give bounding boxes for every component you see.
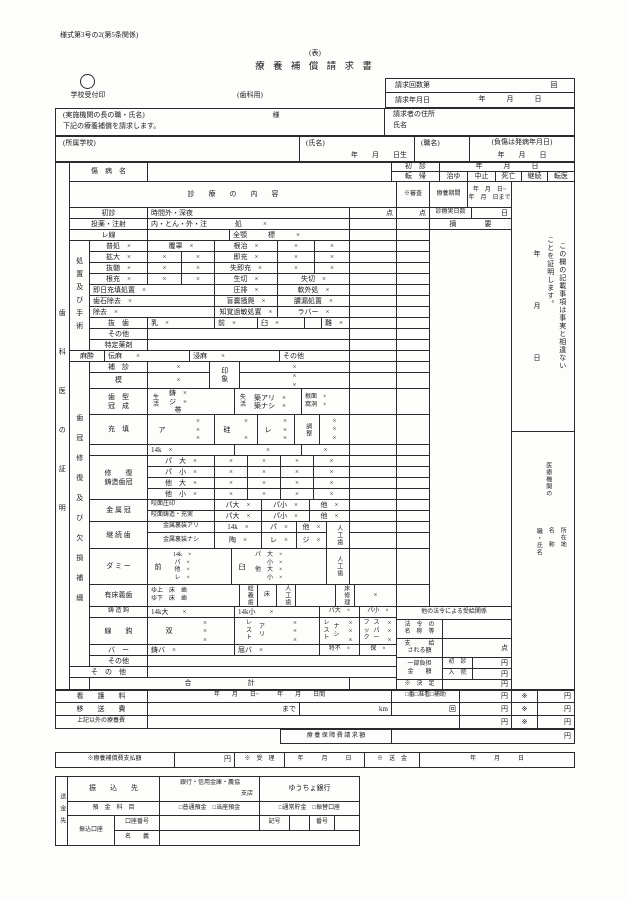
cell-rows-yuka_shuri: 床修理: [336, 585, 355, 607]
cell-rows-dmy_label: ダ ミ ー: [90, 549, 148, 585]
school-stamp-circle-icon: [80, 74, 95, 89]
cell-who-born: 年 月 日生: [322, 150, 410, 160]
cell-head-day: 日: [472, 208, 512, 219]
cell-rows-dmy1: 前: [152, 549, 164, 585]
cell-jokigai-yen: 円: [460, 716, 512, 729]
cell-rows-f3-0: 他 大 ×: [148, 478, 215, 489]
cell-rows-s2-1: ×: [148, 252, 182, 263]
cell-rows-kin1-1: パ大 ×: [215, 500, 262, 511]
cell-rows-sen2: レ ス ト: [322, 618, 331, 645]
cell-rows-mo-0: 模: [90, 373, 148, 389]
cell-rows-juten_label: 充 填: [90, 415, 148, 445]
cell-kango-label: 看 護 料: [55, 690, 148, 703]
blank-cell: [148, 329, 350, 340]
blank-cell: [148, 618, 235, 645]
cell-pay-juri: ※ 受 理: [235, 752, 285, 768]
cell-header-style_no: 様式第3号の2(第5条関係): [57, 30, 237, 41]
cell-kango-yen: 円: [538, 690, 575, 703]
cell-hoka-nyuin: 入 院: [443, 669, 473, 680]
cell-rows-kin2-0: 咬面鋳造・充実: [148, 511, 215, 522]
cell-rows-sen1: 双: [163, 618, 175, 645]
cell-rows-juten-1: × × ×: [188, 415, 208, 445]
blank-cell: [160, 831, 360, 846]
blank-cell: [350, 500, 397, 511]
cell-rows-dmy2_items: パ 大 × 小 × 他 大 × 小 ×: [252, 549, 324, 585]
blank-cell: [350, 307, 397, 318]
cell-rows-shufuku_label: 修 復 鋳造歯冠: [90, 456, 148, 500]
cell-grp-shochi: 処置及び手術: [70, 241, 90, 351]
cell-rows-insho: 印象: [210, 362, 240, 389]
cell-rows-f2-2: ×: [248, 467, 281, 478]
cell-rows-sonota_in: その他: [90, 656, 148, 667]
cell-certify-y: 年: [531, 248, 543, 260]
cell-rows-juten-2: 硅: [221, 415, 233, 445]
cell-rows-sen3b: ナ シ: [332, 618, 341, 645]
cell-rows-sen4x: × × ×: [383, 618, 396, 645]
blank-cell: [70, 678, 90, 690]
cell-certify-line2: ことを証明します。: [544, 192, 557, 352]
cell-seikyu-yen: 円: [392, 729, 575, 744]
cell-rows-juten-5: × × ×: [279, 415, 291, 445]
cell-rows-sogigishi: 総義歯: [240, 585, 258, 607]
cell-rows-f1-0: パ 大 ×: [148, 456, 215, 467]
cell-rows-bar-2: 屈バ ×: [235, 645, 320, 656]
blank-cell: [350, 389, 397, 415]
cell-rows-kin2-1: パ大 ×: [215, 511, 262, 522]
cell-header-title: 療 養 補 償 請 求 書: [218, 61, 412, 75]
blank-cell: [350, 415, 397, 445]
blank-cell: [350, 285, 397, 296]
blank-cell: [397, 373, 430, 389]
cell-who-job: (職名): [418, 138, 463, 148]
cell-rows-sen2: レ ス ト: [244, 618, 254, 645]
cell-rows-s6-1: 盲嚢掻爬 ×: [215, 296, 278, 307]
blank-cell: [397, 522, 430, 533]
cell-rows-s3-2: ×: [182, 263, 215, 274]
cell-claim-date_label: 請求年月日: [392, 95, 450, 106]
cell-rows-s8-2: 前 ×: [215, 318, 258, 329]
cell-rows-sen1x: × × ×: [198, 618, 212, 645]
blank-cell: [350, 456, 397, 467]
cell-grp-shikan: 歯冠修復及び欠損補綴: [70, 362, 90, 667]
blank-cell: [350, 241, 397, 252]
cell-iso-kai: 回: [392, 703, 460, 716]
cell-certify-name: 名 称: [544, 516, 555, 558]
cell-kango-dates: 年 月 日~ 年 月 日間: [148, 690, 392, 703]
cell-rows-kin_label: 金 属 冠: [90, 500, 148, 522]
blank-cell: [350, 373, 397, 389]
cell-request-name: 氏名: [390, 120, 450, 130]
cell-byomei-o3: 死亡: [496, 172, 522, 182]
cell-claim-times_unit: 回: [542, 80, 566, 91]
cell-request-to: (実施機関の長の職・氏名): [60, 110, 230, 120]
cell-byomei-label: 傷 病 名: [70, 162, 148, 182]
cell-rows-s2-5: ×: [315, 252, 350, 263]
cell-rows-f3-4: ×: [314, 478, 350, 489]
cell-rows-dmy1_items: 14k × パ × 他 × レ ×: [170, 549, 228, 585]
blank-cell: [397, 329, 430, 340]
cell-rows-f4-3: ×: [281, 489, 314, 500]
blank-cell: [90, 445, 148, 456]
blank-cell: [350, 329, 397, 340]
blank-cell: [397, 241, 430, 252]
cell-rows-f2-4: ×: [314, 467, 350, 478]
cell-head-tekiyo: 摘 要: [430, 219, 512, 230]
cell-bank-yucho: ゆうちょ銀行: [260, 776, 360, 802]
cell-rows-kei2-2: レ ×: [262, 533, 297, 549]
cell-rows-k14-1: ×: [235, 445, 302, 456]
cell-rows-insho_x-0: ×: [240, 362, 350, 373]
cell-rows-kin1-0: 咬面圧印: [148, 500, 215, 511]
cell-jokigai-star: ※: [512, 716, 538, 729]
blank-cell: [350, 362, 397, 373]
cell-request-body: 下記の療養補償を請求します。: [60, 121, 220, 131]
cell-rows-bar-4: 保 ×: [360, 645, 397, 656]
cell-rows-masui-2: その他: [280, 351, 350, 362]
cell-rows-f1-2: ×: [248, 456, 281, 467]
blank-cell: [290, 816, 310, 831]
cell-rows-kei1-1: 14k ×: [215, 522, 262, 533]
cell-rows-s8-4: 難 ×: [322, 318, 350, 329]
cell-head-ten: 点: [397, 208, 430, 219]
blank-cell: [148, 162, 392, 182]
cell-rows-xray-0: レ線: [70, 230, 148, 241]
cell-rows-s1-3: ×: [278, 241, 315, 252]
cell-iso-made: まで: [148, 703, 300, 716]
cell-rows-kei1-3: 他 ×: [297, 522, 327, 533]
cell-rows-sen2x: × × ×: [344, 618, 357, 645]
blank-cell: [350, 489, 397, 500]
cell-rows-yusho_x: ×: [355, 585, 397, 607]
cell-rows-sonota_out: そ の 他: [70, 667, 148, 678]
cell-rows-f2-0: パ 小 ×: [148, 467, 215, 478]
cell-byomei-o4: 継続: [522, 172, 548, 182]
cell-rows-s8-1: 乳 ×: [148, 318, 215, 329]
blank-cell: [148, 667, 397, 678]
cell-rows-masui-0: 伝麻 ×: [105, 351, 190, 362]
cell-rows-insho_x-1: × ×: [240, 373, 350, 389]
blank-cell: [148, 656, 397, 667]
cell-rows-bar-1: 鋳バ ×: [148, 645, 235, 656]
cell-rows-bar-3: 特不 ×: [320, 645, 360, 656]
blank-cell: [397, 219, 430, 230]
blank-cell: [148, 230, 230, 241]
cell-seikyu-label: 療 養 保 障 費 請 求 額: [280, 729, 392, 744]
cell-rows-shikei-0: 生 活: [150, 389, 162, 415]
cell-rows-chuzo-1: 14k大 ×: [148, 607, 235, 618]
cell-byomei-o5: 転医: [548, 172, 575, 182]
blank-cell: [397, 263, 430, 274]
blank-cell: [305, 318, 322, 329]
blank-cell: [350, 478, 397, 489]
cell-iso-yen: 円: [460, 703, 512, 716]
cell-iso-star: ※: [512, 703, 538, 716]
cell-rows-s4-1: ×: [148, 274, 182, 285]
cell-jokigai-label: 上記以外の療養費: [55, 716, 148, 729]
cell-rows-f4-4: ×: [314, 489, 350, 500]
blank-cell: [397, 285, 430, 296]
cell-rows-f1-1: ×: [215, 456, 248, 467]
blank-cell: [397, 415, 430, 445]
cell-head-kikan: 療養期間: [430, 182, 468, 208]
cell-claim-ymd: 年 月 日: [450, 94, 570, 105]
cell-header-dental: (歯科用): [222, 90, 278, 100]
cell-hoka-kettei: ※ 決 定: [397, 680, 443, 690]
cell-rows-s6-0: 歯石除去 ×: [90, 296, 215, 307]
cell-rows-chuzo-0: 鋳 造 鈎: [90, 607, 148, 618]
blank-cell: [350, 252, 397, 263]
blank-cell: [397, 389, 430, 415]
cell-rows-f3-3: ×: [281, 478, 314, 489]
cell-rows-f4-2: ×: [248, 489, 281, 500]
cell-rows-sen_label: 線 鈎: [90, 618, 148, 645]
cell-rows-shoshin-1: 時間外・深夜: [148, 208, 350, 219]
cell-rows-s3-3: 失即充 ×: [215, 263, 278, 274]
cell-rows-s4-2: ×: [182, 274, 215, 285]
cell-rows-toyaku-0: 投薬・注射: [70, 219, 148, 230]
cell-certify-line1: この欄の記載事項は事実と相違ない: [556, 192, 569, 420]
cell-rows-f4-0: 他 小 ×: [148, 489, 215, 500]
cell-certify-left: 歯科医の証明: [55, 162, 70, 690]
cell-hoka-horei: 法 令 の 名 称 等: [397, 620, 443, 639]
cell-rows-f2-1: ×: [215, 467, 248, 478]
blank-cell: [350, 274, 397, 285]
blank-cell: [397, 549, 430, 585]
cell-byomei-first: 初 診: [392, 162, 440, 172]
blank-cell: [148, 340, 350, 351]
cell-rows-s7-1: 知覚過敏処置 ×: [215, 307, 278, 318]
blank-cell: [350, 549, 397, 585]
cell-pay-yen: 円: [175, 752, 235, 768]
cell-pay-label: ※療養補償費支払額: [55, 752, 175, 768]
cell-claim-times: 請求回数第: [392, 80, 472, 91]
cell-byomei-first_ymd: 年 月 日: [440, 162, 575, 172]
cell-rows-shoshin-0: 初診: [70, 208, 148, 219]
cell-rows-s3-5: ×: [315, 263, 350, 274]
cell-certify-job: 職・氏名: [532, 516, 543, 568]
cell-rows-masui-1: 浸麻 ×: [190, 351, 280, 362]
cell-who-injury: (負傷は発病年月日): [472, 137, 572, 147]
cell-bank-futsu: □普通預金 □当座預金: [160, 802, 260, 816]
cell-kango-yen: 円: [460, 690, 512, 703]
cell-pay-ymd: 年 月 日: [420, 752, 575, 768]
cell-head-ten: 点: [350, 208, 397, 219]
blank-cell: [397, 307, 430, 318]
blank-cell: [397, 500, 430, 511]
blank-cell: [397, 445, 430, 456]
cell-rows-yusho_label: 有床義歯: [90, 585, 148, 607]
cell-rows-s5-2: 軟外処 ×: [278, 285, 350, 296]
blank-cell: [350, 467, 397, 478]
blank-cell: [397, 456, 430, 467]
cell-iso-label: 移 送 費: [55, 703, 148, 716]
cell-rows-s1-0: 普処 ×: [90, 241, 148, 252]
cell-rows-kei_label: 継 続 歯: [90, 522, 148, 549]
cell-hoka-ten: 点: [443, 639, 512, 658]
cell-bank-bango: 番号: [310, 816, 335, 831]
cell-rows-s2-4: ×: [278, 252, 315, 263]
cell-rows-f3-1: ×: [215, 478, 248, 489]
cell-certify-d: 日: [531, 352, 543, 364]
cell-rows-hoshin-1: ×: [148, 362, 210, 373]
cell-rows-hoshin-0: 補 診: [90, 362, 148, 373]
blank-cell: [350, 296, 397, 307]
cell-header-stamp_label: 学校受付印: [58, 90, 118, 100]
cell-rows-kei2-3: ジ ×: [297, 533, 327, 549]
blank-cell: [397, 362, 430, 373]
cell-bank-branch: 支店: [228, 790, 256, 800]
cell-rows-jinko: 人工歯: [327, 549, 350, 585]
blank-cell: [397, 585, 430, 607]
cell-rows-k14-2: ×: [302, 445, 350, 456]
blank-cell: [350, 219, 397, 230]
cell-rows-kei1-0: 金属裏装アリ: [148, 522, 215, 533]
blank-cell: [397, 296, 430, 307]
cell-rows-toyaku-1: 内・とん・外・注 処 ×: [148, 219, 350, 230]
blank-cell: [160, 816, 260, 831]
cell-rows-shikei-1: 鋳 × ジ × 帯: [166, 389, 232, 415]
cell-head-shinsa: ※審査: [397, 182, 430, 208]
cell-rows-juten-7: × × ×: [320, 415, 350, 445]
cell-head-naiyo: 診 療 の 内 容: [70, 182, 397, 208]
blank-cell: [397, 252, 430, 263]
cell-rows-s4-4: 失切 ×: [278, 274, 350, 285]
blank-cell: [443, 620, 512, 639]
cell-rows-s8-0: 抜 歯: [90, 318, 148, 329]
blank-cell: [397, 467, 430, 478]
cell-rows-kin2-3: 他 ×: [310, 511, 350, 522]
cell-head-k12: 年 月 日~ 年 月 日まで: [468, 182, 512, 208]
cell-rows-toko: 床: [258, 585, 277, 607]
cell-rows-gokei: 合 計: [90, 678, 350, 690]
cell-who-ymd: 年 月 日: [472, 150, 572, 160]
cell-rows-sen2b: ア リ: [257, 618, 267, 645]
cell-certify-addr: 所在地: [556, 516, 567, 558]
cell-rows-xray-1: 全顎 標 ×: [230, 230, 350, 241]
cell-rows-dmy2: 臼: [236, 549, 248, 585]
cell-rows-s10: 特定薬剤: [90, 340, 148, 351]
cell-rows-s6-2: 膿漏処置 ×: [278, 296, 350, 307]
cell-bank-koza_no: 口座番号: [115, 816, 160, 831]
blank-cell: [397, 340, 430, 351]
blank-cell: [350, 522, 397, 533]
cell-rows-shikei-4: 根面 × 窩洞 ×: [302, 389, 350, 415]
cell-rows-s5-1: 圧排 ×: [215, 285, 278, 296]
cell-grp-masui: 麻酔: [70, 351, 105, 362]
blank-cell: [350, 533, 397, 549]
cell-hoka-shikyu: 支 給 される額: [397, 639, 443, 658]
blank-cell: [335, 816, 360, 831]
cell-rows-chuzo-3: パ大 ×: [320, 607, 360, 618]
cell-rows-s3-0: 抜髄 ×: [90, 263, 148, 274]
cell-rows-kin1-3: 他 ×: [310, 500, 350, 511]
cell-rows-s1-4: ×: [315, 241, 350, 252]
blank-cell: [350, 340, 397, 351]
cell-rows-s2-0: 拡大 ×: [90, 252, 148, 263]
cell-bank-furikomi: 振 込 先: [68, 776, 160, 802]
cell-certify-m: 月: [531, 300, 543, 312]
blank-cell: [397, 230, 430, 241]
cell-kango-star: ※: [512, 690, 538, 703]
cell-rows-s5-0: 即日充填処置 ×: [90, 285, 215, 296]
cell-rows-kei1-2: パ ×: [262, 522, 297, 533]
blank-cell: [397, 533, 430, 549]
medical-claim-form-dental: 様式第3号の2(第5条関係)(表)療 養 補 償 請 求 書学校受付印(歯科用)…: [0, 0, 630, 902]
cell-rows-s7-0: 除去 ×: [90, 307, 215, 318]
cell-rows-yusho1: ゆ上 床 歯 ゆ下 床 歯: [148, 585, 240, 607]
cell-byomei-o1: 治ゆ: [440, 172, 468, 182]
blank-cell: [350, 351, 397, 362]
cell-rows-f2-3: ×: [281, 467, 314, 478]
cell-bank-tsujo: □通常貯金 □振替口座: [260, 802, 360, 816]
cell-rows-sen2x: × × ×: [288, 618, 302, 645]
cell-certify-org: 医療機関の: [541, 448, 553, 510]
cell-rows-f3-2: ×: [248, 478, 281, 489]
cell-rows-sen4b: ス パ ー: [372, 618, 381, 645]
blank-cell: [397, 511, 430, 522]
cell-rows-chuzo-2: 14k小 ×: [235, 607, 320, 618]
blank-cell: [397, 351, 430, 362]
cell-hoka-yen: 円: [473, 669, 512, 680]
cell-rows-s4-0: 根充 ×: [90, 274, 148, 285]
cell-rows-s1-1: 覆罩 ×: [148, 241, 215, 252]
cell-rows-shikei-2: 失 活: [237, 389, 249, 415]
blank-cell: [148, 716, 460, 729]
cell-rows-s2-2: ×: [182, 252, 215, 263]
cell-rows-s2-3: 即充 ×: [215, 252, 278, 263]
blank-cell: [397, 318, 430, 329]
cell-who-name: (氏名): [303, 138, 348, 148]
cell-iso-yen: 円: [538, 703, 575, 716]
blank-cell: [350, 511, 397, 522]
cell-rows-jinko: 人工歯: [277, 585, 296, 607]
cell-jokigai-yen: 円: [538, 716, 575, 729]
cell-rows-s3-4: ×: [278, 263, 315, 274]
cell-hoka-yen: 円: [473, 658, 512, 669]
cell-rows-f4-1: ×: [215, 489, 248, 500]
blank-cell: [350, 445, 397, 456]
cell-rows-juten-4: レ: [262, 415, 274, 445]
cell-hoka-title: 他の法令による受給関係: [397, 607, 512, 620]
cell-head-days: 診療実日数: [430, 208, 472, 219]
cell-rows-juten-0: ア: [156, 415, 168, 445]
cell-rows-s3-1: ×: [148, 263, 182, 274]
cell-rows-shikei-3: 築アリ × 築ナシ ×: [251, 389, 300, 415]
cell-rows-bar-0: バ ー: [90, 645, 148, 656]
cell-hoka-yen: 円: [443, 680, 512, 690]
cell-rows-kei2-1: 陶 ×: [215, 533, 262, 549]
cell-rows-juten-3: × ×: [239, 415, 253, 445]
blank-cell: [397, 478, 430, 489]
blank-cell: [430, 230, 512, 607]
blank-cell: [350, 318, 397, 329]
cell-bank-yokin: 預 金 科 目: [68, 802, 160, 816]
cell-rows-chuzo-4: パ小 ×: [360, 607, 397, 618]
cell-rows-sen4a: フ ッ ク: [362, 618, 371, 645]
cell-request-addr: 請求者の住所: [390, 109, 480, 119]
blank-cell: [397, 489, 430, 500]
cell-rows-kei2-0: 金属裏装ナシ: [148, 533, 215, 549]
cell-byomei-o2: 中止: [468, 172, 496, 182]
cell-rows-k14-0: 14k ×: [148, 445, 235, 456]
cell-rows-jinko: 人工歯: [327, 522, 350, 549]
cell-request-sama: 様: [266, 110, 286, 120]
cell-rows-shikei_label: 歯 型 冠 成: [90, 389, 148, 415]
cell-rows-juten-6: 調整: [295, 415, 320, 445]
cell-rows-s1-2: 根治 ×: [215, 241, 278, 252]
cell-bank-meigi: 名 義: [115, 831, 160, 846]
cell-iso-km: km: [300, 703, 392, 716]
